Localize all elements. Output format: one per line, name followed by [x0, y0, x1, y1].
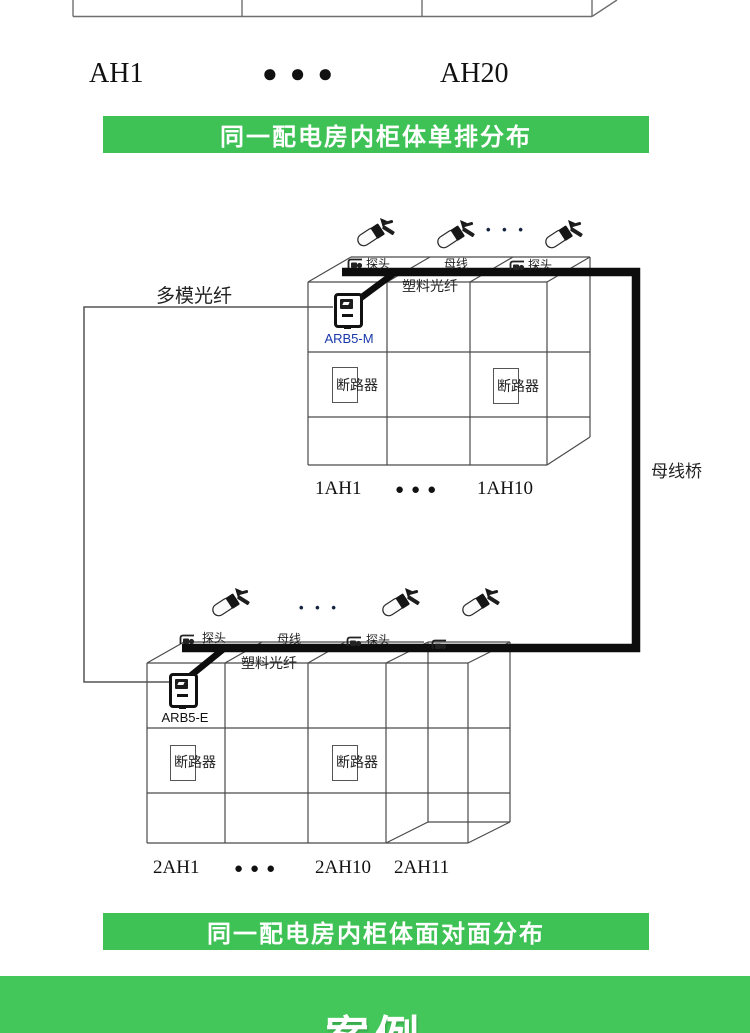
- sensor-icon: [436, 220, 475, 250]
- case-section-band: 案例: [0, 976, 750, 1033]
- sensor-icon: [544, 220, 583, 250]
- probe-label: 探头: [366, 255, 390, 272]
- plastic-fiber-label: 塑料光纤: [402, 276, 458, 296]
- breaker-label: 断路器: [336, 752, 378, 772]
- sensor-icon: [356, 218, 395, 248]
- sensor-icon: [381, 588, 420, 618]
- breaker-label: 断路器: [174, 752, 216, 772]
- banner-face-to-face-title: 同一配电房内柜体面对面分布: [103, 913, 649, 950]
- diagram2-cabinet-extra-label: 2AH11: [394, 857, 449, 879]
- device-nub: [179, 705, 186, 709]
- diagram-linework: [0, 0, 750, 1033]
- diagram2-cabinet-mid-label: 2AH10: [315, 857, 371, 879]
- arb5-m-device-icon: [334, 293, 363, 328]
- device-nub: [344, 325, 351, 329]
- probe-label: 探头: [366, 631, 390, 648]
- breaker-label: 断路器: [336, 375, 378, 395]
- busbar-label: 母线: [277, 630, 301, 647]
- breaker-label: 断路器: [497, 376, 539, 396]
- diagram2-cabinet-first-label: 2AH1: [153, 857, 199, 879]
- diagram1-cabinet-first-label: 1AH1: [315, 478, 361, 500]
- probe-label: 探头: [528, 256, 552, 273]
- device-dash: [342, 314, 353, 317]
- case-section-title: 案例: [325, 1001, 425, 1033]
- diagram1-cabinet-last-label: 1AH10: [477, 478, 533, 500]
- top-cabinet-dots: ●●●: [262, 58, 345, 89]
- arb5-e-label: ARB5-E: [156, 710, 214, 725]
- device-screen: [175, 679, 188, 689]
- diagram2-cabinet-lines: [147, 642, 510, 843]
- busbar-bridge-label: 母线桥: [651, 457, 702, 482]
- multimode-fiber-line: [84, 307, 333, 682]
- plastic-fiber-label: 塑料光纤: [241, 653, 297, 673]
- page: AH1 ●●● AH20 同一配电房内柜体单排分布 多模光纤 探头 母线 探头 …: [0, 0, 750, 1033]
- diagram2-cabinet-dots: ●●●: [234, 860, 282, 877]
- probe-label: 探头: [202, 629, 226, 646]
- sensor-icon: [211, 588, 250, 618]
- sensor-ellipsis: • • •: [299, 600, 340, 615]
- multimode-fiber-label: 多模光纤: [156, 281, 232, 308]
- device-screen: [340, 299, 353, 309]
- probe-bracket-icon: [349, 260, 363, 269]
- sensor-ellipsis: • • •: [486, 222, 527, 237]
- top-cabinet-last-label: AH20: [440, 58, 508, 90]
- sensor-icon: [461, 588, 500, 618]
- diagram1-cabinet-dots: ●●●: [395, 481, 443, 498]
- busbar-label: 母线: [444, 255, 468, 272]
- banner-single-row-title: 同一配电房内柜体单排分布: [103, 116, 649, 153]
- top-cabinet-row-lines: [73, 0, 617, 17]
- device-dash: [177, 694, 188, 697]
- arb5-e-device-icon: [169, 673, 198, 708]
- top-cabinet-first-label: AH1: [89, 58, 143, 90]
- arb5-m-label: ARB5-M: [320, 331, 378, 346]
